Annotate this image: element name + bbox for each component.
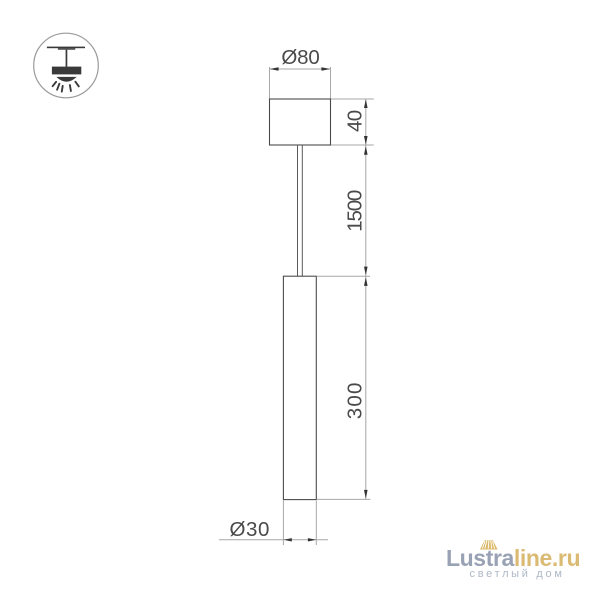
svg-text:светлый дом: светлый дом (470, 568, 565, 580)
svg-text:Ø30: Ø30 (230, 518, 271, 541)
svg-text:40: 40 (344, 110, 367, 132)
svg-text:Ø80: Ø80 (281, 46, 319, 69)
svg-text:1500: 1500 (344, 190, 367, 232)
svg-text:300: 300 (344, 381, 367, 419)
